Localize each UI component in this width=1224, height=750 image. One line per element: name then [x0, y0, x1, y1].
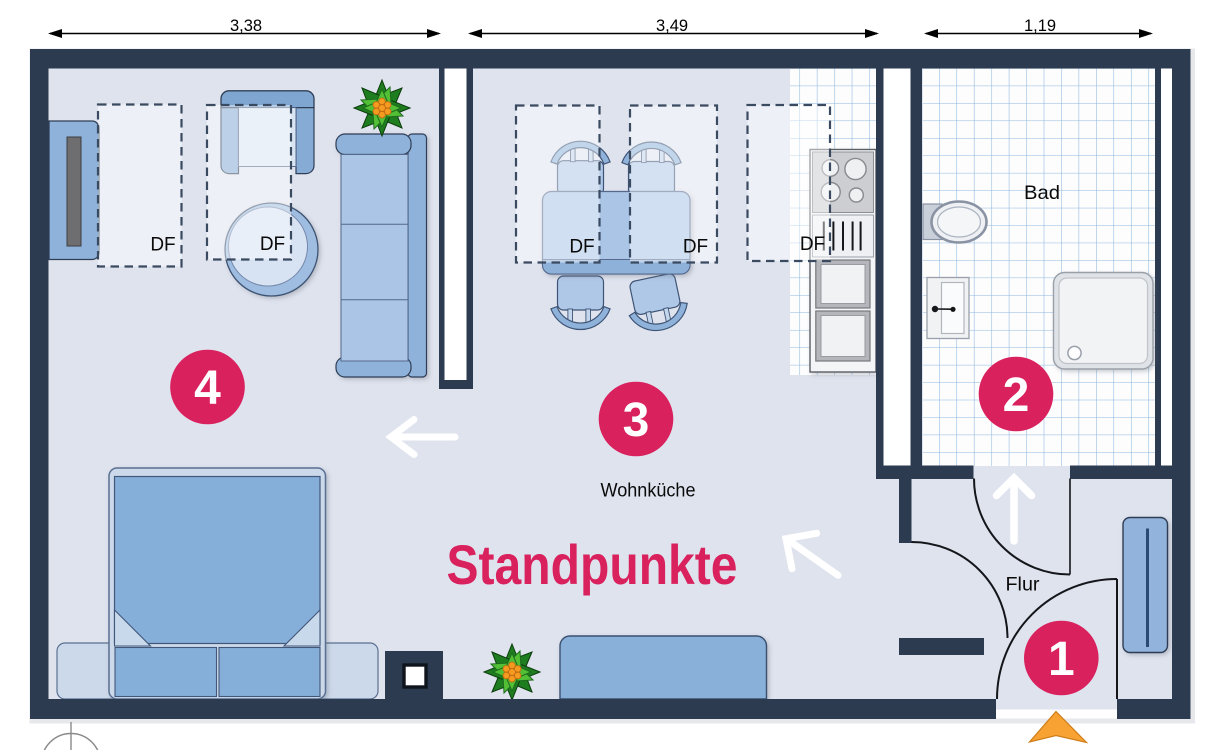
svg-text:Flur: Flur: [1006, 574, 1041, 596]
svg-text:1: 1: [1048, 633, 1075, 686]
svg-text:DF: DF: [150, 235, 175, 256]
svg-text:Standpunkte: Standpunkte: [447, 533, 738, 596]
svg-text:Bad: Bad: [1024, 182, 1060, 204]
svg-text:DF: DF: [683, 237, 708, 258]
svg-text:3,38: 3,38: [230, 17, 262, 35]
svg-text:DF: DF: [569, 237, 594, 258]
svg-text:2: 2: [1003, 369, 1030, 422]
svg-text:1,19: 1,19: [1024, 17, 1056, 35]
svg-text:3: 3: [623, 394, 650, 447]
svg-text:4: 4: [194, 362, 221, 415]
svg-text:3,49: 3,49: [656, 17, 688, 35]
svg-text:DF: DF: [800, 234, 825, 255]
svg-text:Wohnküche: Wohnküche: [601, 480, 696, 502]
svg-text:DF: DF: [260, 234, 285, 255]
